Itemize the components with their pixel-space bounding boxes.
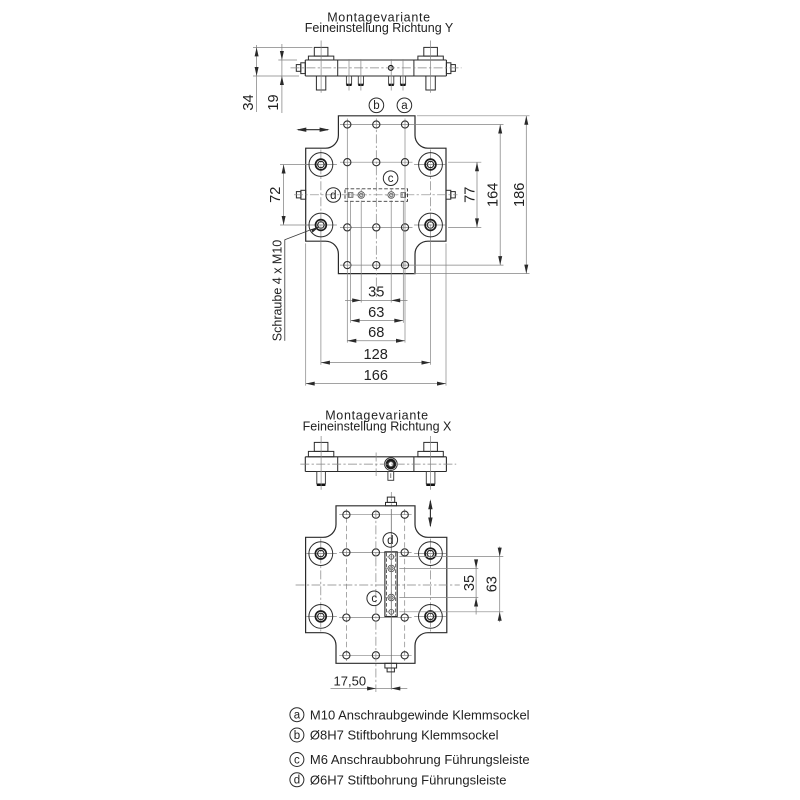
svg-text:d: d: [387, 535, 393, 547]
svg-text:a: a: [401, 100, 408, 112]
svg-text:b: b: [373, 100, 379, 112]
svg-text:c: c: [371, 593, 377, 605]
svg-text:186: 186: [512, 183, 528, 207]
svg-text:128: 128: [364, 347, 388, 363]
svg-text:c: c: [294, 754, 300, 766]
svg-text:M10 Anschraubgewinde Klemmsock: M10 Anschraubgewinde Klemmsockel: [310, 707, 530, 722]
svg-text:164: 164: [486, 183, 502, 207]
svg-text:a: a: [294, 710, 301, 722]
svg-text:63: 63: [485, 576, 501, 592]
svg-text:72: 72: [268, 187, 284, 203]
svg-text:Feineinstellung Richtung X: Feineinstellung Richtung X: [303, 419, 452, 433]
svg-text:Feineinstellung Richtung Y: Feineinstellung Richtung Y: [305, 21, 454, 35]
svg-text:34: 34: [241, 94, 257, 110]
svg-text:68: 68: [368, 325, 384, 341]
svg-text:c: c: [388, 173, 394, 185]
svg-text:d: d: [294, 775, 300, 787]
svg-text:63: 63: [368, 305, 384, 321]
svg-text:77: 77: [463, 187, 479, 203]
svg-text:19: 19: [266, 94, 282, 110]
svg-text:d: d: [330, 190, 336, 202]
svg-text:b: b: [294, 730, 300, 742]
svg-text:Ø8H7 Stiftbohrung Klemmsockel: Ø8H7 Stiftbohrung Klemmsockel: [310, 728, 499, 743]
svg-text:Schraube 4 x M10: Schraube 4 x M10: [271, 240, 285, 341]
svg-text:35: 35: [368, 285, 384, 301]
svg-text:166: 166: [364, 368, 388, 384]
svg-text:17,50: 17,50: [334, 673, 367, 688]
svg-text:35: 35: [462, 575, 478, 591]
svg-text:M6 Anschraubbohrung Führungsle: M6 Anschraubbohrung Führungsleiste: [310, 752, 530, 767]
svg-text:Ø6H7 Stiftbohrung Führungsleis: Ø6H7 Stiftbohrung Führungsleiste: [310, 772, 507, 787]
